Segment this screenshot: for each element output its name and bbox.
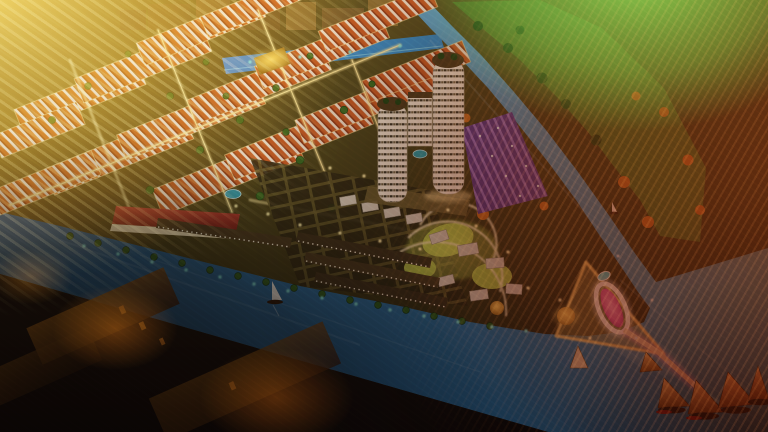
rendered-scene: Aerial night rendering of a riverside to… xyxy=(0,0,768,432)
tower-pool xyxy=(413,150,427,158)
tower-right xyxy=(432,52,464,194)
midrise-block xyxy=(408,92,432,146)
tower-left xyxy=(377,97,407,202)
scene-canvas: Aerial night rendering of a riverside to… xyxy=(0,0,768,432)
